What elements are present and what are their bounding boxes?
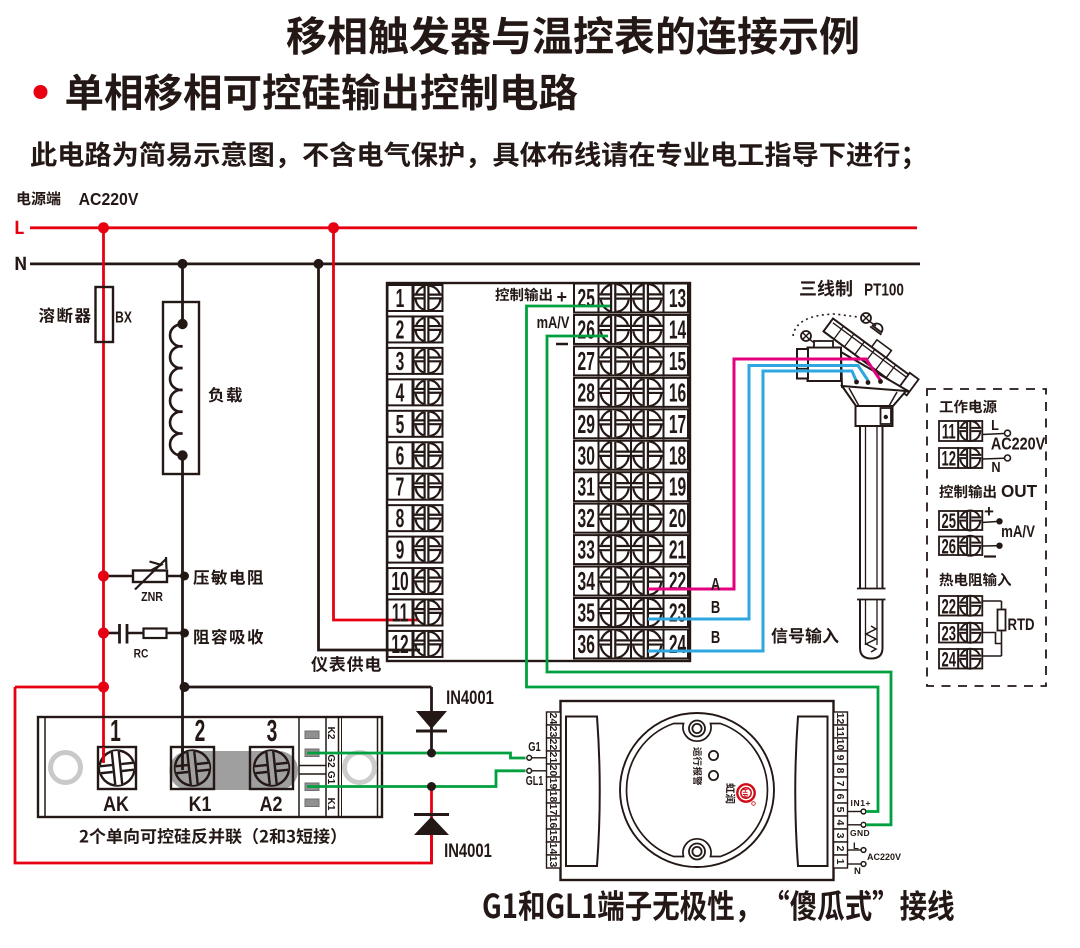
svg-text:36: 36 xyxy=(578,630,595,659)
svg-text:AC220V: AC220V xyxy=(867,852,901,862)
svg-text:23: 23 xyxy=(547,726,559,738)
svg-text:11: 11 xyxy=(834,726,846,737)
svg-text:AC220V: AC220V xyxy=(991,434,1045,454)
svg-text:23: 23 xyxy=(669,598,686,627)
svg-text:L: L xyxy=(991,416,999,433)
svg-text:16: 16 xyxy=(669,378,686,407)
svg-text:ZNR: ZNR xyxy=(141,590,163,604)
svg-text:28: 28 xyxy=(578,378,595,407)
svg-text:5: 5 xyxy=(396,410,405,439)
svg-text:9: 9 xyxy=(396,536,405,565)
svg-text:RC: RC xyxy=(134,648,149,661)
svg-text:RTD: RTD xyxy=(1007,616,1034,635)
svg-text:5: 5 xyxy=(834,807,846,813)
svg-text:2: 2 xyxy=(396,315,405,344)
svg-text:12: 12 xyxy=(834,713,846,725)
svg-text:17: 17 xyxy=(669,410,686,439)
svg-text:25: 25 xyxy=(578,284,595,313)
svg-text:N: N xyxy=(991,458,1000,475)
svg-text:3: 3 xyxy=(267,715,278,749)
svg-text:1: 1 xyxy=(396,284,405,313)
svg-text:34: 34 xyxy=(578,567,595,596)
svg-text:6: 6 xyxy=(834,794,846,800)
svg-text:13: 13 xyxy=(669,284,686,313)
svg-text:19: 19 xyxy=(669,473,686,502)
svg-text:G1: G1 xyxy=(528,741,540,755)
svg-text:A: A xyxy=(711,575,720,595)
svg-text:20: 20 xyxy=(547,765,559,777)
svg-text:26: 26 xyxy=(578,315,595,344)
svg-text:A2: A2 xyxy=(260,793,283,817)
svg-text:14: 14 xyxy=(669,315,686,344)
svg-text:11: 11 xyxy=(392,598,409,627)
svg-text:7: 7 xyxy=(396,473,405,502)
svg-text:32: 32 xyxy=(578,504,595,533)
svg-text:B: B xyxy=(711,628,720,648)
svg-text:BX: BX xyxy=(115,308,132,326)
svg-text:B: B xyxy=(711,598,720,618)
svg-text:AK: AK xyxy=(103,793,129,817)
svg-text:IN4001: IN4001 xyxy=(444,840,492,861)
svg-text:OUT: OUT xyxy=(1001,481,1037,502)
svg-text:4: 4 xyxy=(396,378,405,407)
svg-text:mA/V: mA/V xyxy=(1001,523,1036,542)
svg-text:2: 2 xyxy=(834,846,846,852)
svg-text:21: 21 xyxy=(669,536,686,565)
svg-text:24: 24 xyxy=(547,713,559,725)
svg-text:10: 10 xyxy=(391,567,408,596)
svg-text:33: 33 xyxy=(578,536,595,565)
svg-text:1: 1 xyxy=(110,715,121,749)
svg-text:+: + xyxy=(984,502,994,521)
svg-text:16: 16 xyxy=(547,817,559,829)
svg-text:3: 3 xyxy=(396,347,405,376)
svg-text:26: 26 xyxy=(941,534,956,558)
svg-text:K1: K1 xyxy=(325,798,336,811)
svg-text:29: 29 xyxy=(578,410,595,439)
svg-text:30: 30 xyxy=(578,441,595,470)
svg-text:17: 17 xyxy=(547,804,559,816)
svg-text:GL1: GL1 xyxy=(526,775,543,789)
svg-text:11: 11 xyxy=(942,419,956,443)
svg-text:6: 6 xyxy=(396,441,405,470)
svg-text:mA/V: mA/V xyxy=(537,315,570,333)
svg-text:+: + xyxy=(557,287,568,307)
svg-text:G2: G2 xyxy=(325,754,336,768)
svg-text:4: 4 xyxy=(834,820,846,826)
svg-text:18: 18 xyxy=(547,791,559,803)
svg-text:20: 20 xyxy=(669,504,686,533)
svg-text:N: N xyxy=(854,866,861,877)
svg-text:GND: GND xyxy=(850,828,870,838)
svg-text:18: 18 xyxy=(669,441,686,470)
svg-text:25: 25 xyxy=(941,509,956,533)
svg-text:K1: K1 xyxy=(189,793,212,817)
svg-text:24: 24 xyxy=(669,630,686,659)
svg-text:7: 7 xyxy=(834,781,846,787)
svg-text:21: 21 xyxy=(547,752,559,764)
svg-text:12: 12 xyxy=(391,630,408,659)
svg-text:24: 24 xyxy=(941,647,956,671)
svg-text:15: 15 xyxy=(669,347,686,376)
svg-text:8: 8 xyxy=(834,768,846,774)
svg-text:19: 19 xyxy=(547,778,559,790)
svg-text:13: 13 xyxy=(547,856,559,868)
svg-text:IN1+: IN1+ xyxy=(851,798,872,808)
svg-text:12: 12 xyxy=(941,446,956,470)
svg-text:K2: K2 xyxy=(325,727,336,740)
svg-text:23: 23 xyxy=(941,621,956,645)
svg-text:G1: G1 xyxy=(325,771,336,785)
svg-text:AC220V: AC220V xyxy=(79,189,139,209)
svg-text:14: 14 xyxy=(547,843,559,855)
svg-text:27: 27 xyxy=(578,347,595,376)
svg-text:8: 8 xyxy=(396,504,405,533)
svg-text:10: 10 xyxy=(834,739,846,751)
svg-text:PT100: PT100 xyxy=(864,281,904,300)
svg-text:35: 35 xyxy=(578,598,595,627)
svg-text:15: 15 xyxy=(547,830,559,842)
svg-text:1: 1 xyxy=(834,859,846,865)
svg-text:31: 31 xyxy=(578,473,595,502)
svg-text:2: 2 xyxy=(195,715,206,749)
svg-text:IN4001: IN4001 xyxy=(446,687,494,708)
svg-text:22: 22 xyxy=(669,567,686,596)
svg-text:9: 9 xyxy=(834,755,846,761)
svg-text:22: 22 xyxy=(941,594,956,618)
svg-text:3: 3 xyxy=(834,833,846,839)
svg-text:22: 22 xyxy=(547,739,559,751)
